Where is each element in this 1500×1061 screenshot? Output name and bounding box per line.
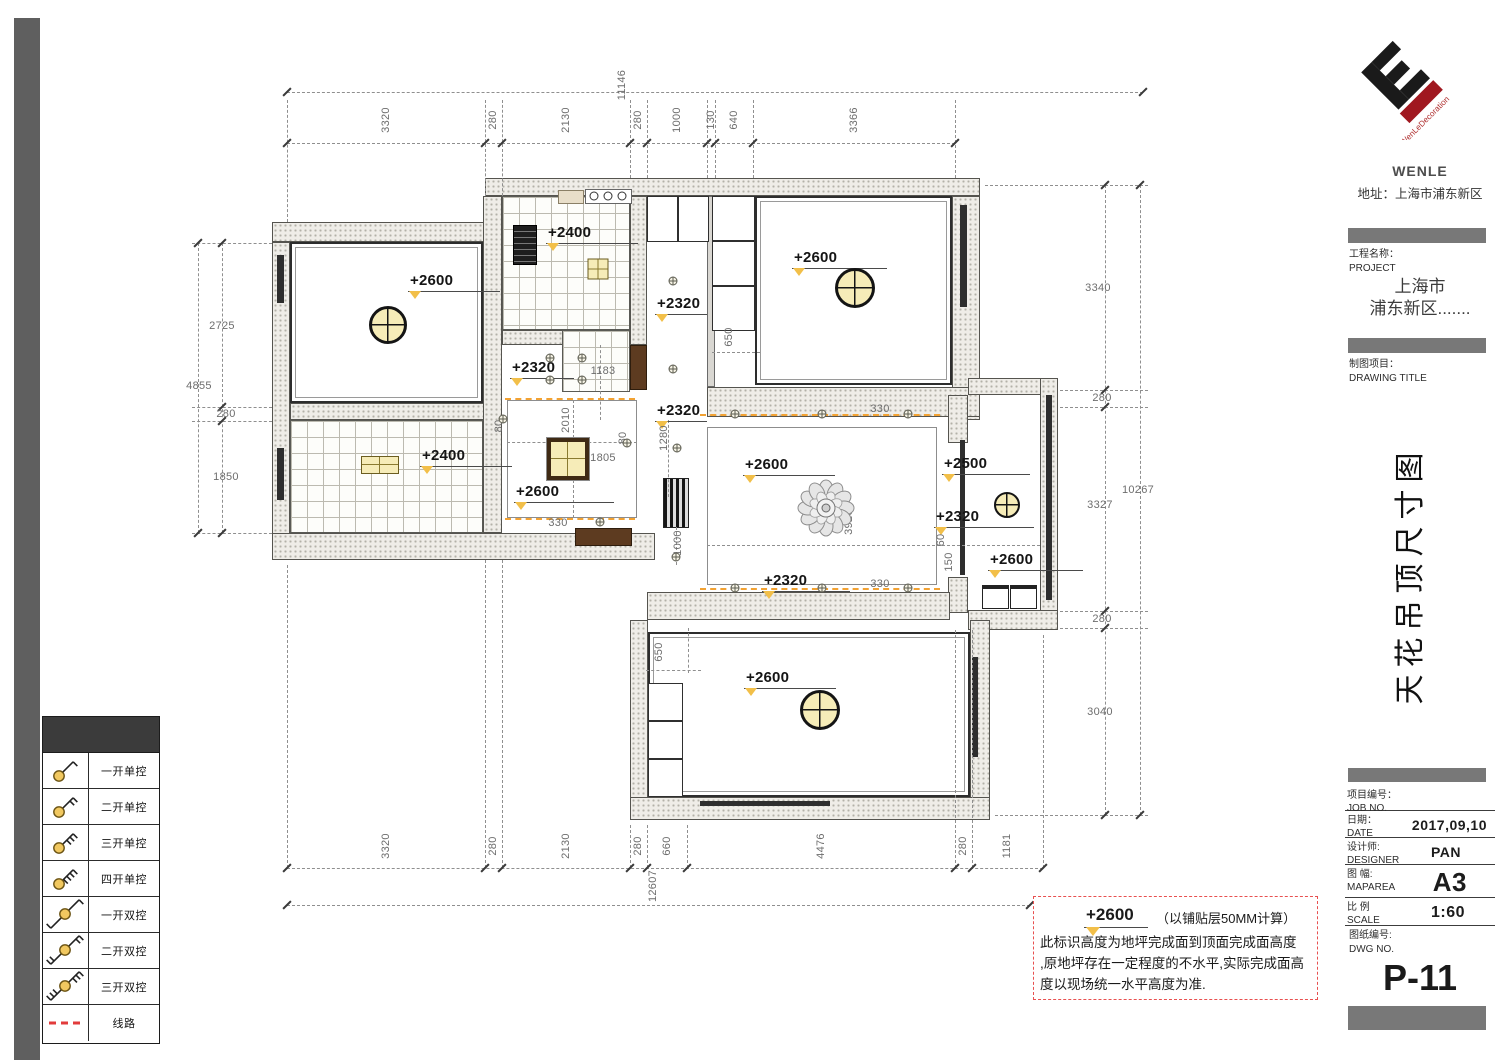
divider-bar bbox=[1348, 1006, 1486, 1030]
dim-line bbox=[1140, 185, 1141, 815]
note-line: 度以现场统一水平高度为准. bbox=[1040, 975, 1314, 996]
dim-label: 330 bbox=[548, 517, 567, 529]
dim-label: 650 bbox=[723, 327, 735, 346]
dim-label: 280 bbox=[1092, 613, 1111, 625]
closet-cell bbox=[678, 196, 709, 242]
dim-line bbox=[222, 243, 223, 533]
height-label: +2320 bbox=[762, 572, 850, 592]
spotlight-icon bbox=[672, 553, 681, 562]
wire-line-icon bbox=[46, 1006, 86, 1040]
legend-label: 三开单控 bbox=[89, 835, 159, 851]
ceiling-edge-dashed bbox=[505, 518, 635, 520]
dim-line bbox=[287, 143, 955, 144]
height-label: +2400 bbox=[420, 447, 512, 467]
spotlight-icon bbox=[578, 354, 587, 363]
dim-label: 280 bbox=[487, 110, 499, 129]
ceiling-light-panel-icon bbox=[588, 259, 609, 280]
spotlight-icon bbox=[499, 415, 508, 424]
designer-row: 设计师:DESIGNER PAN bbox=[1345, 838, 1495, 865]
spotlight-icon bbox=[904, 410, 913, 419]
dim-line bbox=[647, 825, 648, 868]
spotlight-icon bbox=[818, 410, 827, 419]
switch-2-double-symbol bbox=[43, 933, 89, 968]
dim-label: 280 bbox=[632, 836, 644, 855]
closet-cell bbox=[648, 721, 683, 759]
dim-label: 3366 bbox=[848, 107, 860, 133]
legend-label: 二开单控 bbox=[89, 799, 159, 815]
dim-line bbox=[646, 670, 701, 671]
wall bbox=[707, 387, 980, 417]
legend-label: 三开双控 bbox=[89, 979, 159, 995]
washing-machine bbox=[1010, 585, 1037, 609]
spotlight-icon bbox=[596, 518, 605, 527]
chandelier-icon bbox=[796, 478, 850, 532]
dim-line bbox=[688, 628, 689, 673]
dim-line bbox=[287, 100, 288, 222]
dim-label: 280 bbox=[632, 110, 644, 129]
dim-line bbox=[192, 421, 272, 422]
dim-label: 1183 bbox=[591, 365, 616, 377]
closet-cell bbox=[712, 241, 755, 286]
dim-label: 280 bbox=[487, 836, 499, 855]
dim-label: 640 bbox=[728, 110, 740, 129]
height-label: +2600 bbox=[514, 483, 614, 503]
legend-row-switch-1-single: 一开单控 bbox=[43, 753, 159, 789]
dim-line bbox=[502, 100, 503, 196]
spotlight-icon bbox=[578, 376, 587, 385]
dim-tick bbox=[1038, 863, 1047, 872]
window bbox=[277, 448, 284, 500]
dim-label: 60 bbox=[935, 534, 947, 547]
dim-line bbox=[687, 825, 688, 868]
dwg-no-label: 图纸编号:DWG NO. bbox=[1349, 929, 1394, 956]
closet-cell bbox=[648, 683, 683, 721]
dim-line bbox=[985, 185, 1148, 186]
switch-3-double-symbol bbox=[43, 969, 89, 1004]
dim-label: 3320 bbox=[380, 107, 392, 133]
height-label: +2320 bbox=[934, 508, 1034, 528]
legend-label: 一开单控 bbox=[89, 763, 159, 779]
wall bbox=[948, 577, 968, 613]
closet-cell bbox=[712, 286, 755, 331]
note-height-label: +2600 bbox=[1084, 905, 1148, 928]
legend-row-switch-1-double: 一开双控 bbox=[43, 897, 159, 933]
dim-label: 280 bbox=[957, 836, 969, 855]
wall bbox=[502, 330, 564, 345]
divider-bar bbox=[1348, 768, 1486, 782]
dim-label: 1850 bbox=[213, 471, 239, 483]
height-label: +2600 bbox=[408, 272, 500, 292]
wall bbox=[272, 222, 502, 242]
spotlight-icon bbox=[623, 439, 632, 448]
legend-label: 二开双控 bbox=[89, 943, 159, 959]
dim-label: 650 bbox=[653, 642, 665, 661]
wall bbox=[290, 403, 502, 420]
legend-row-switch-2-double: 二开双控 bbox=[43, 933, 159, 969]
dim-line bbox=[485, 560, 486, 868]
dim-line bbox=[485, 100, 486, 196]
ceiling-lamp-icon bbox=[369, 306, 407, 344]
date-value: 2017,09,10 bbox=[1412, 817, 1487, 833]
switch-3-double-icon bbox=[44, 969, 88, 1005]
title-block: WenLeDecoration WENLE 地址：上海市浦东新区 工程名称： P… bbox=[1345, 0, 1495, 1061]
note-height-remark: （以铺贴层50MM计算） bbox=[1156, 908, 1296, 927]
legend-label: 线路 bbox=[89, 1015, 159, 1031]
dim-label: 1000 bbox=[671, 107, 683, 133]
left-edge-bar bbox=[14, 18, 40, 1060]
tiled-ceiling bbox=[290, 420, 483, 533]
divider-bar bbox=[1348, 338, 1486, 353]
legend-header bbox=[43, 717, 159, 753]
designer-value: PAN bbox=[1431, 844, 1461, 860]
maparea-row: 图 幅:MAPAREA A3 bbox=[1345, 865, 1495, 898]
height-label: +2500 bbox=[942, 455, 1030, 475]
dim-line bbox=[955, 630, 956, 868]
dim-label: 2010 bbox=[560, 407, 572, 433]
switch-4-single-icon bbox=[44, 861, 88, 897]
dim-line bbox=[600, 345, 601, 420]
wall bbox=[630, 620, 648, 820]
dim-label: 2130 bbox=[560, 107, 572, 133]
height-label: +2320 bbox=[655, 402, 707, 422]
spotlight-icon bbox=[904, 584, 913, 593]
switch-1-double-icon bbox=[44, 897, 88, 933]
ceiling-edge-dashed bbox=[505, 398, 635, 400]
height-label: +2320 bbox=[510, 359, 574, 379]
stove bbox=[513, 225, 537, 265]
dim-label: 12607 bbox=[647, 870, 659, 902]
closet-cell bbox=[712, 196, 755, 241]
legend-row-switch-3-single: 三开单控 bbox=[43, 825, 159, 861]
dim-label: 11146 bbox=[616, 70, 628, 100]
dim-label: 4855 bbox=[186, 380, 212, 392]
spotlight-icon bbox=[673, 444, 682, 453]
note-paragraph: 此标识高度为地坪完成面到顶面完成面高度,原地坪存在一定程度的不水平,实际完成面高… bbox=[1040, 933, 1314, 996]
scale-row: 比 例SCALE 1:60 bbox=[1345, 898, 1495, 926]
sink-knob-icon bbox=[618, 192, 627, 201]
door-head bbox=[575, 528, 632, 546]
dim-line bbox=[972, 630, 973, 868]
dim-line bbox=[287, 92, 1143, 93]
dwg-no-value: P-11 bbox=[1345, 957, 1495, 999]
project-label: 工程名称： PROJECT bbox=[1349, 248, 1399, 275]
dim-line bbox=[287, 868, 1043, 869]
dim-label: 10267 bbox=[1122, 484, 1154, 496]
legend-row-wire-line: 线路 bbox=[43, 1005, 159, 1041]
switch-2-single-symbol bbox=[43, 789, 89, 824]
spotlight-icon bbox=[669, 277, 678, 286]
switch-1-double-symbol bbox=[43, 897, 89, 932]
legend-row-switch-4-single: 四开单控 bbox=[43, 861, 159, 897]
height-note-box: +2600 （以铺贴层50MM计算） 此标识高度为地坪完成面到顶面完成面高度,原… bbox=[1033, 896, 1318, 1000]
wenle-logo: WenLeDecoration bbox=[1353, 25, 1453, 140]
dim-line bbox=[995, 815, 1148, 816]
window bbox=[960, 205, 967, 307]
spotlight-icon bbox=[669, 365, 678, 374]
window bbox=[277, 255, 284, 303]
dim-label: 150 bbox=[943, 552, 955, 571]
dim-label: 1805 bbox=[590, 452, 616, 464]
dim-label: 280 bbox=[216, 408, 235, 420]
spotlight-icon bbox=[818, 584, 827, 593]
job-no-row: 项目编号：JOB NO. bbox=[1345, 786, 1495, 811]
height-label: +2600 bbox=[744, 669, 836, 689]
note-line: 此标识高度为地坪完成面到顶面完成面高度 bbox=[1040, 933, 1314, 954]
ceiling-lamp-icon bbox=[994, 492, 1020, 518]
dim-line bbox=[630, 825, 631, 868]
dim-label: 2130 bbox=[560, 833, 572, 859]
ceiling-light-panel-icon bbox=[361, 456, 399, 474]
dim-line bbox=[192, 243, 272, 244]
closet-cell bbox=[648, 759, 683, 797]
spotlight-icon bbox=[731, 584, 740, 593]
switch-1-single-icon bbox=[44, 753, 88, 789]
dim-label: 3040 bbox=[1087, 706, 1113, 718]
sink-knob-icon bbox=[590, 192, 599, 201]
note-line: ,原地坪存在一定程度的不水平,实际完成面高 bbox=[1040, 954, 1314, 975]
date-row: 日期：DATE 2017,09,10 bbox=[1345, 811, 1495, 838]
wall bbox=[483, 196, 502, 533]
maparea-value: A3 bbox=[1433, 867, 1467, 898]
spotlight-icon bbox=[546, 376, 555, 385]
wall bbox=[948, 395, 968, 443]
switch-4-single-symbol bbox=[43, 861, 89, 896]
dim-label: 2725 bbox=[209, 320, 235, 332]
dim-label: 330 bbox=[870, 403, 889, 415]
wall bbox=[630, 196, 647, 345]
dim-line bbox=[712, 352, 760, 353]
curtain-box bbox=[663, 478, 689, 528]
switch-3-single-symbol bbox=[43, 825, 89, 860]
drawing-title-vertical: 天花吊顶尺寸图 bbox=[1385, 446, 1429, 705]
kitchen-counter bbox=[558, 190, 584, 204]
dim-label: 4476 bbox=[815, 833, 827, 859]
spotlight-icon bbox=[546, 354, 555, 363]
legend-label: 一开双控 bbox=[89, 907, 159, 923]
legend-row-switch-2-single: 二开单控 bbox=[43, 789, 159, 825]
dim-line bbox=[707, 545, 1040, 546]
dim-line bbox=[502, 560, 503, 868]
dim-label: 1280 bbox=[658, 425, 670, 451]
dim-label: 130 bbox=[705, 110, 717, 129]
wire-line-symbol bbox=[43, 1005, 89, 1041]
dim-line bbox=[287, 905, 1030, 906]
switch-1-single-symbol bbox=[43, 753, 89, 788]
dim-label: 3340 bbox=[1085, 282, 1111, 294]
drawing-title-label: 制图项目： DRAWING TITLE bbox=[1349, 358, 1427, 385]
height-label: +2320 bbox=[655, 295, 707, 315]
spotlight-icon bbox=[731, 410, 740, 419]
switch-legend: 一开单控二开单控三开单控四开单控一开双控二开双控三开双控 线路 bbox=[42, 716, 160, 1044]
height-label: +2400 bbox=[546, 224, 638, 244]
switch-2-single-icon bbox=[44, 789, 88, 825]
fridge bbox=[630, 345, 647, 390]
ceiling-lamp-icon bbox=[800, 690, 840, 730]
dim-line bbox=[1043, 635, 1044, 868]
project-line2: 浦东新区....... bbox=[1345, 294, 1495, 319]
height-label: +2600 bbox=[988, 551, 1083, 571]
company-name: WENLE bbox=[1345, 163, 1495, 179]
company-address: 地址：上海市浦东新区 bbox=[1345, 183, 1495, 202]
dim-label: 1181 bbox=[1001, 834, 1013, 859]
switch-2-double-icon bbox=[44, 933, 88, 969]
height-label: +2600 bbox=[743, 456, 835, 476]
dim-label: 280 bbox=[1092, 392, 1111, 404]
washing-machine bbox=[982, 585, 1009, 609]
dim-label: 660 bbox=[661, 836, 673, 855]
dim-tick bbox=[1138, 87, 1147, 96]
ceiling-light-panel-icon bbox=[547, 438, 589, 480]
switch-3-single-icon bbox=[44, 825, 88, 861]
drawing-sheet: 一开单控二开单控三开单控四开单控一开双控二开双控三开双控 线路 +2600+24… bbox=[0, 0, 1500, 1061]
dim-label: 330 bbox=[870, 578, 889, 590]
dim-line bbox=[192, 533, 272, 534]
legend-label: 四开单控 bbox=[89, 871, 159, 887]
window bbox=[700, 801, 830, 806]
dim-label: 3327 bbox=[1087, 499, 1113, 511]
closet-cell bbox=[647, 196, 678, 242]
legend-row-switch-3-double: 三开双控 bbox=[43, 969, 159, 1005]
divider-bar bbox=[1348, 228, 1486, 243]
dim-line bbox=[287, 565, 288, 868]
dim-label: 3320 bbox=[380, 833, 392, 859]
scale-value: 1:60 bbox=[1431, 904, 1465, 922]
wall bbox=[647, 592, 950, 620]
sink-knob-icon bbox=[604, 192, 613, 201]
height-label: +2600 bbox=[792, 249, 887, 269]
ceiling-lamp-icon bbox=[835, 268, 875, 308]
